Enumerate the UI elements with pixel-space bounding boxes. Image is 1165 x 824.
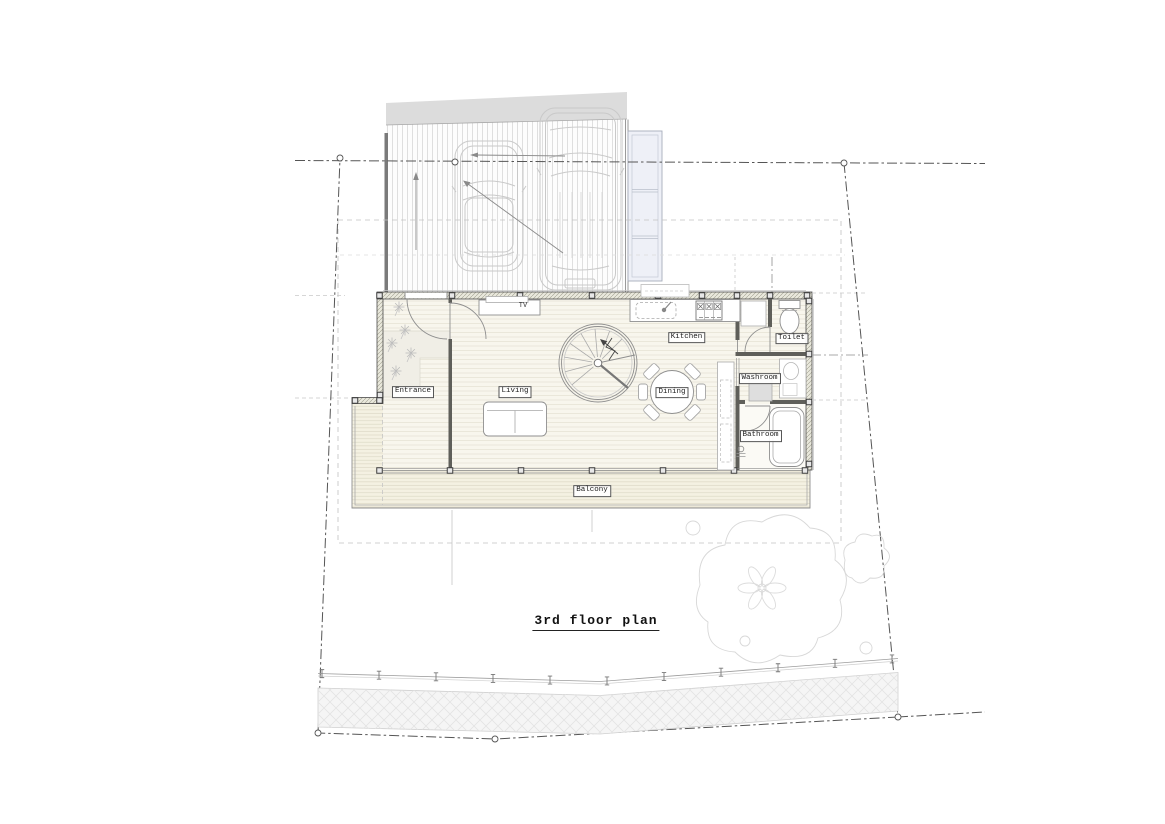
- flower: [738, 565, 786, 612]
- label-toilet: Toilet: [775, 333, 808, 345]
- range-hood: [641, 285, 689, 298]
- toilet-fixture: [779, 301, 800, 334]
- washbasin: [780, 359, 807, 398]
- label-living: Living: [498, 386, 531, 398]
- label-tv: TV: [519, 302, 527, 310]
- trees: [686, 515, 890, 663]
- label-dining: Dining: [655, 387, 688, 399]
- drawing-title: 3rd floor plan: [532, 613, 659, 631]
- hall-cabinet: [741, 301, 766, 326]
- floor-plan-drawing: [0, 0, 1165, 824]
- label-balcony: Balcony: [573, 485, 611, 497]
- label-kitchen: Kitchen: [668, 332, 706, 344]
- entrance-partition: [449, 339, 453, 470]
- sofa: [484, 402, 547, 436]
- label-entrance: Entrance: [392, 386, 434, 398]
- exterior-stair: [628, 131, 662, 281]
- kitchen-counter: [630, 300, 740, 322]
- garage-wall: [385, 133, 389, 292]
- label-bathroom: Bathroom: [739, 430, 781, 442]
- stove: [696, 301, 722, 320]
- label-washroom: Washroom: [738, 373, 780, 385]
- road: [318, 673, 898, 735]
- dining-counter: [718, 362, 735, 470]
- floor-plan-canvas: Entrance Living Dining Kitchen Toilet Wa…: [0, 0, 1165, 824]
